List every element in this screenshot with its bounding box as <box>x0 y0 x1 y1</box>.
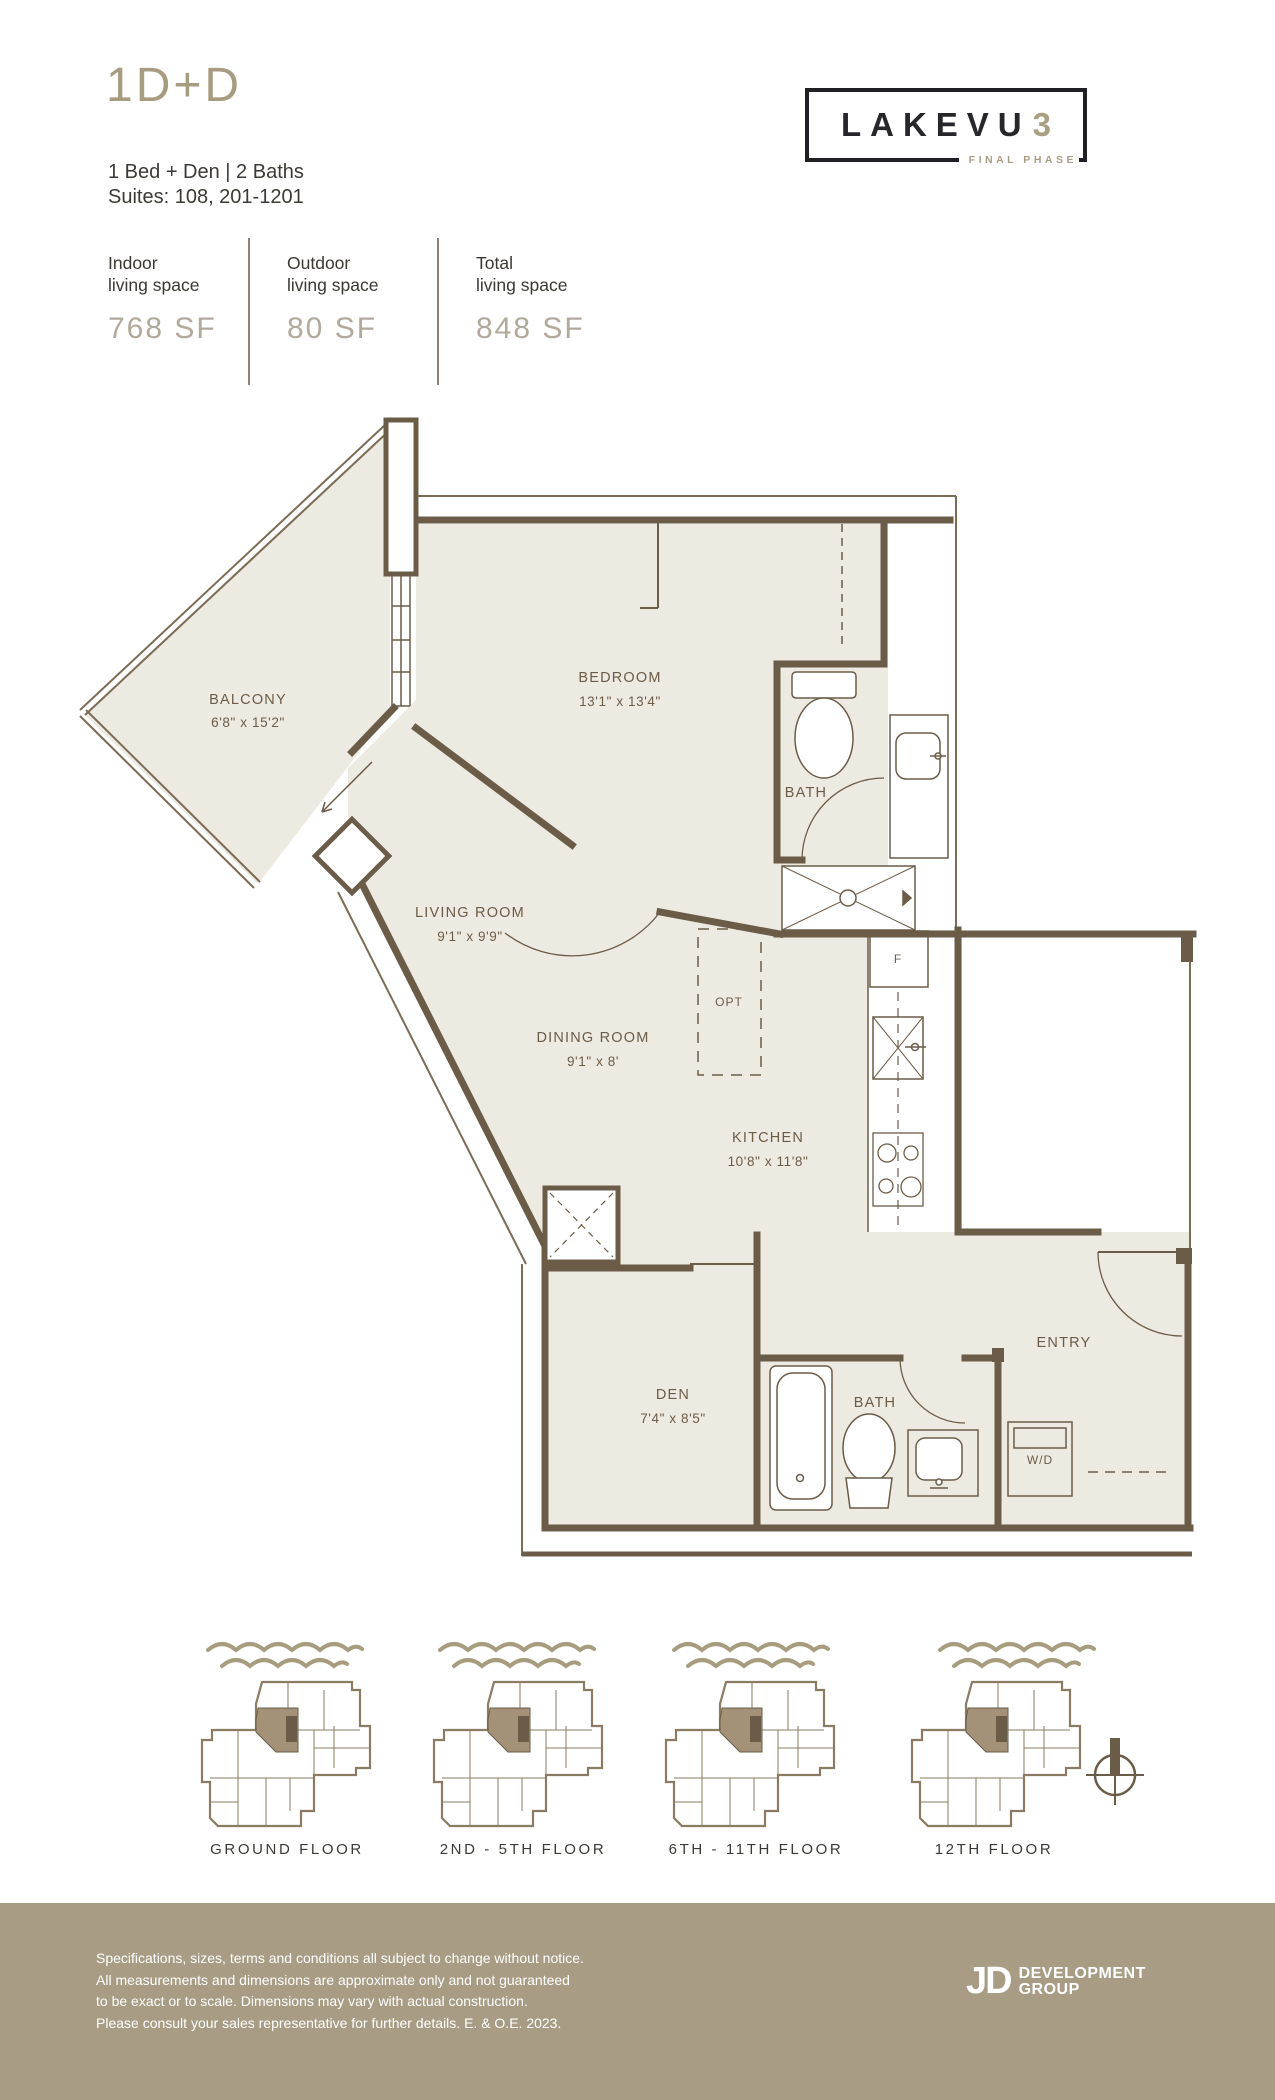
keyplan-6th-11th <box>666 1682 834 1826</box>
window <box>392 574 410 706</box>
waves-icon <box>674 1644 828 1666</box>
room-label-living: LIVING ROOM <box>415 905 525 921</box>
keyplan-12th <box>912 1682 1080 1826</box>
keyplan-row: GROUND FLOOR 2ND - 5TH FLOOR 6TH - 11TH … <box>202 1644 1144 1858</box>
room-label-entry: ENTRY <box>1037 1335 1092 1351</box>
wd-marker: W/D <box>1027 1453 1053 1467</box>
wall-notch <box>1181 934 1193 962</box>
shower-icon <box>782 866 915 930</box>
den-closet <box>545 1188 618 1262</box>
toilet-icon <box>792 672 856 778</box>
room-dims-balcony: 6'8" x 15'2" <box>211 715 285 730</box>
fridge-marker: F <box>894 952 902 966</box>
toilet-icon <box>843 1414 895 1508</box>
keyplan-label: 12TH FLOOR <box>935 1841 1054 1858</box>
waves-icon <box>208 1644 362 1666</box>
room-label-balcony: BALCONY <box>209 692 287 708</box>
keyplan-2nd-5th <box>434 1682 602 1826</box>
developer-monogram: JD <box>966 1962 1011 2000</box>
room-label-bedroom: BEDROOM <box>578 670 661 686</box>
door-jamb <box>992 1348 1004 1362</box>
developer-logo: JD DEVELOPMENT GROUP <box>966 1962 1146 2000</box>
compass-icon <box>1086 1738 1144 1805</box>
door-jamb <box>1176 1248 1192 1264</box>
room-label-kitchen: KITCHEN <box>732 1130 804 1146</box>
room-label-den: DEN <box>656 1387 690 1403</box>
room-label-dining: DINING ROOM <box>536 1030 649 1046</box>
waves-icon <box>440 1644 594 1666</box>
keyplan-label: 2ND - 5TH FLOOR <box>440 1841 607 1858</box>
disclaimer-text: Specifications, sizes, terms and conditi… <box>96 1948 736 2034</box>
floor-fills <box>84 428 1190 1528</box>
room-label-bath: BATH <box>785 785 827 801</box>
keyplan-label: 6TH - 11TH FLOOR <box>669 1841 844 1858</box>
keyplan-label: GROUND FLOOR <box>210 1841 364 1858</box>
developer-name: DEVELOPMENT GROUP <box>1019 1966 1146 1998</box>
keyplan-ground <box>202 1682 370 1826</box>
room-dims-kitchen: 10'8" x 11'8" <box>728 1154 809 1169</box>
room-label-bath2: BATH <box>854 1395 896 1411</box>
floor-plan-graphic: BALCONY 6'8" x 15'2" BEDROOM 13'1" x 13'… <box>0 0 1275 2100</box>
bathtub-icon <box>770 1366 832 1510</box>
waves-icon <box>940 1644 1094 1666</box>
opt-marker: OPT <box>715 995 743 1009</box>
room-dims-living: 9'1" x 9'9" <box>437 929 503 944</box>
room-dims-bedroom: 13'1" x 13'4" <box>579 694 661 709</box>
room-dims-den: 7'4" x 8'5" <box>640 1411 706 1426</box>
balcony-pier <box>386 420 416 574</box>
brochure-page: 1D+D 1 Bed + Den | 2 Baths Suites: 108, … <box>0 0 1275 2100</box>
room-dims-dining: 9'1" x 8' <box>567 1054 619 1069</box>
